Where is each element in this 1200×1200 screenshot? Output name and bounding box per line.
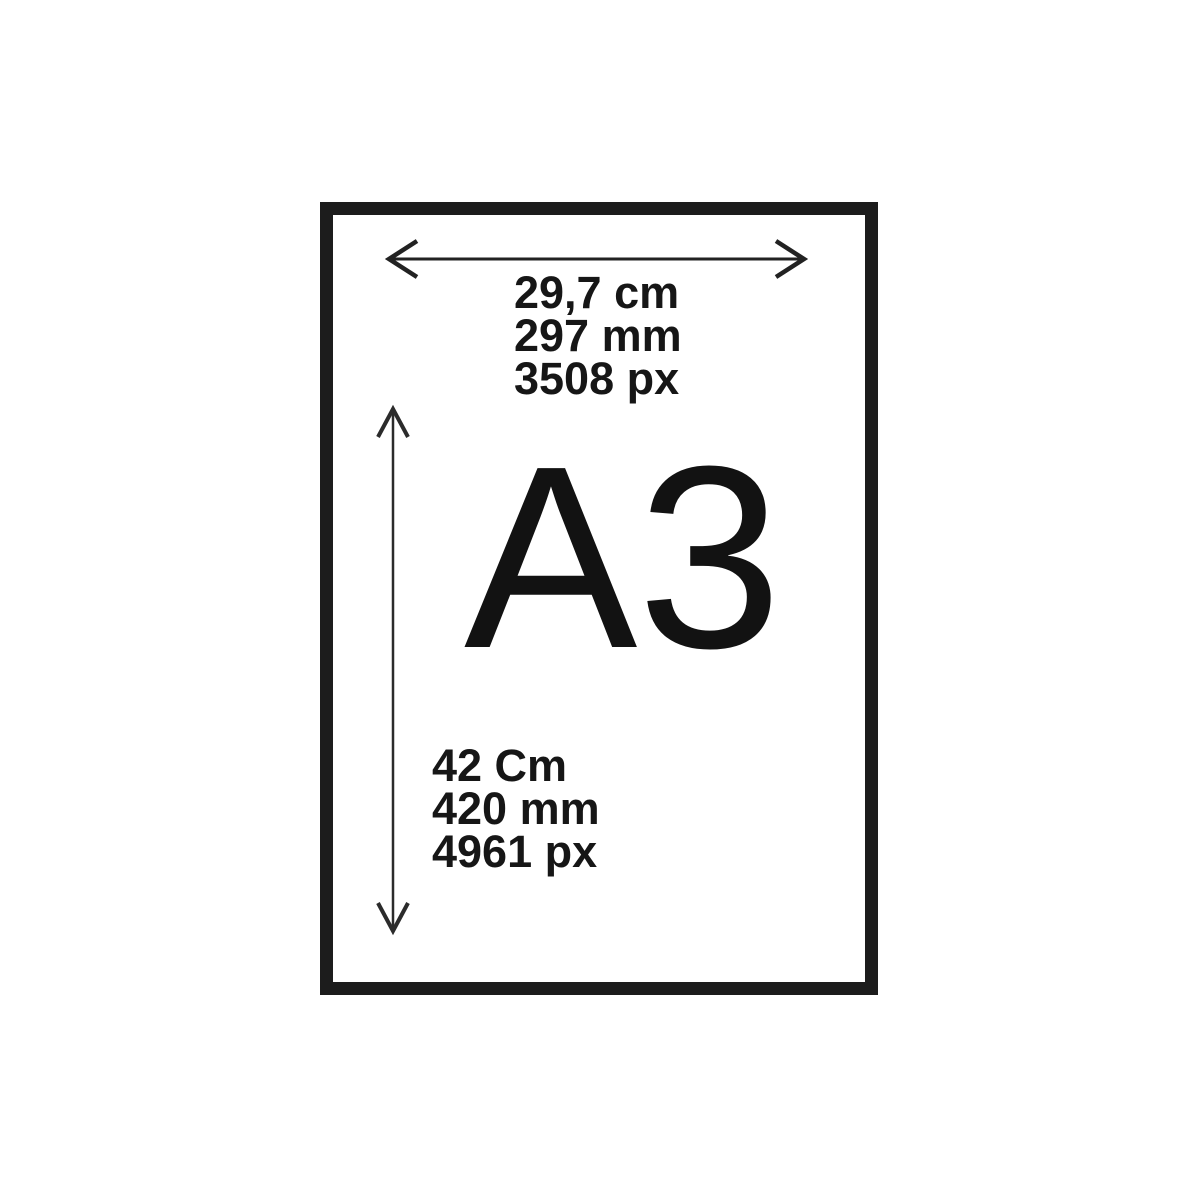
width-cm-label: 29,7 cm xyxy=(514,271,682,314)
width-px-label: 3508 px xyxy=(514,357,682,400)
height-dimension-labels: 42 Cm 420 mm 4961 px xyxy=(432,744,600,873)
width-mm-label: 297 mm xyxy=(514,314,682,357)
paper-size-title: A3 xyxy=(464,428,782,688)
height-cm-label: 42 Cm xyxy=(432,744,600,787)
width-dimension-labels: 29,7 cm 297 mm 3508 px xyxy=(514,271,682,400)
height-mm-label: 420 mm xyxy=(432,787,600,830)
a3-paper-size-diagram: 29,7 cm 297 mm 3508 px A3 42 Cm 420 mm 4… xyxy=(0,0,1200,1200)
height-px-label: 4961 px xyxy=(432,830,600,873)
